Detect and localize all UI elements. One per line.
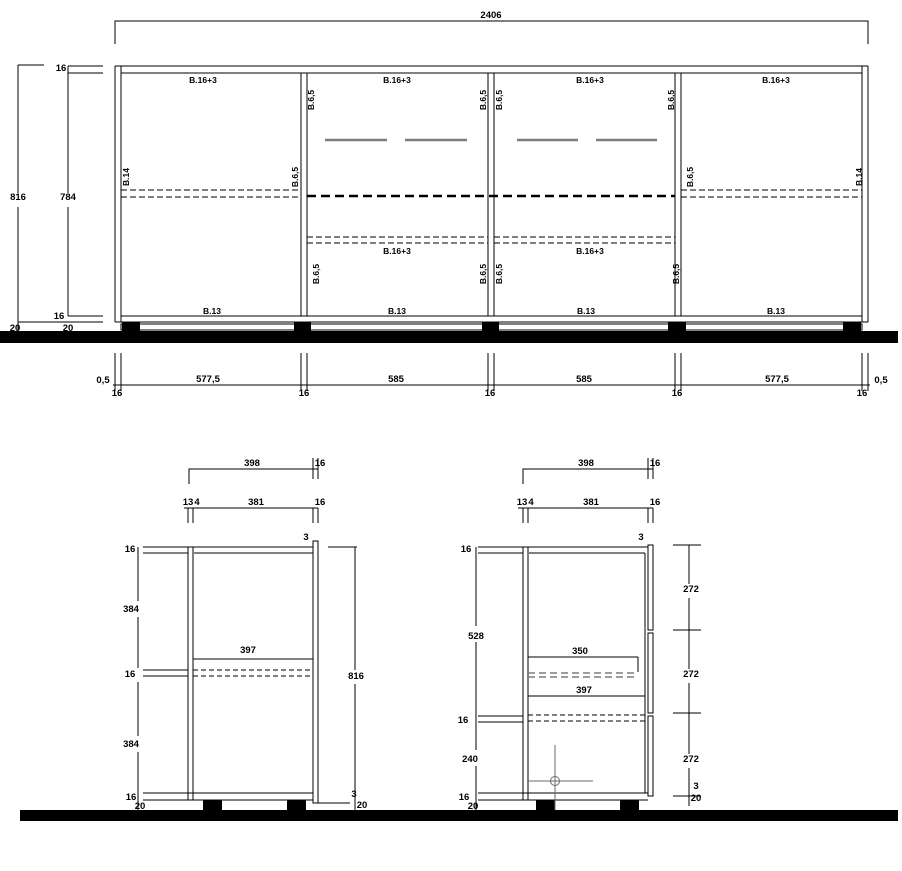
label-b65-low-1: B.6,5 bbox=[311, 264, 321, 285]
secA-dim-3-bottom: 3 bbox=[351, 789, 356, 800]
secA-hidden-lines bbox=[193, 670, 313, 676]
dim-bottom-panel: 16 bbox=[54, 311, 65, 322]
dim-bay3-width: 585 bbox=[576, 374, 593, 385]
secA-dim-top16: 16 bbox=[125, 544, 136, 555]
secA-dim-397: 397 bbox=[240, 645, 256, 656]
dim-16-5: 16 bbox=[857, 388, 868, 399]
secA-dim-384-lower: 384 bbox=[123, 739, 140, 750]
label-shelf-bay2: B.16+3 bbox=[383, 246, 411, 256]
label-bay3-top: B.16+3 bbox=[576, 75, 604, 85]
label-b65-mid-1: B.6,5 bbox=[290, 167, 300, 188]
label-b14-right: B.14 bbox=[854, 168, 864, 186]
cad-drawing-page: 2406 B.16+3 B.16+3 B.16+3 B.16+3 B.16+3 … bbox=[0, 0, 902, 871]
label-b65-top-2: B.6,5 bbox=[478, 90, 488, 111]
label-bottom-bay2: B.13 bbox=[388, 306, 406, 316]
label-bay2-top: B.16+3 bbox=[383, 75, 411, 85]
label-b65-mid-2: B.6,5 bbox=[685, 167, 695, 188]
secB-dim-272-1: 272 bbox=[683, 584, 699, 595]
secA-dim-384-upper: 384 bbox=[123, 604, 140, 615]
secA-dim-816: 816 bbox=[348, 671, 364, 682]
secA-dim-13: 13 bbox=[183, 497, 194, 508]
label-b65-top-4: B.6,5 bbox=[666, 90, 676, 111]
secB-dim-4: 4 bbox=[528, 497, 534, 508]
dim-16-1: 16 bbox=[112, 388, 123, 399]
dim-foot-b: 20 bbox=[63, 323, 74, 334]
label-b65-top-1: B.6,5 bbox=[306, 90, 316, 111]
label-bay1-top: B.16+3 bbox=[189, 75, 217, 85]
label-bottom-bay4: B.13 bbox=[767, 306, 785, 316]
dim-gap-right: 0,5 bbox=[874, 375, 888, 386]
secB-dim-foot20-right: 20 bbox=[691, 793, 702, 804]
secA-dim-foot20-right: 20 bbox=[357, 800, 368, 811]
secA-dim-398: 398 bbox=[244, 458, 260, 469]
secB-middle-front bbox=[648, 633, 653, 713]
secA-dim-16-door: 16 bbox=[315, 458, 326, 469]
secB-upper-door bbox=[648, 545, 653, 630]
dim-overall-width-label: 2406 bbox=[480, 10, 501, 21]
secB-dim-3-top: 3 bbox=[638, 532, 643, 543]
secB-dim-397: 397 bbox=[576, 685, 592, 696]
secB-dim-16-door2: 16 bbox=[650, 497, 661, 508]
secB-dim-272-3: 272 bbox=[683, 754, 699, 765]
secB-left-dim-lines bbox=[476, 547, 523, 810]
dim-foot-a: 20 bbox=[10, 323, 21, 334]
dim-16-2: 16 bbox=[299, 388, 310, 399]
secA-left-dim-lines bbox=[138, 547, 188, 810]
secB-feet bbox=[536, 800, 639, 810]
dim-16-3: 16 bbox=[485, 388, 496, 399]
secB-dim-350: 350 bbox=[572, 646, 588, 657]
label-b14-left: B.14 bbox=[121, 168, 131, 186]
dim-bay1-width: 577,5 bbox=[196, 374, 220, 385]
label-b65-low-2: B.6,5 bbox=[478, 264, 488, 285]
secA-dim-16-door2: 16 bbox=[315, 497, 326, 508]
secB-gray-hidden-lines bbox=[528, 673, 638, 677]
secB-depth-dim-line-2 bbox=[518, 508, 653, 523]
secB-lower-front bbox=[648, 716, 653, 796]
partition-lines bbox=[301, 73, 681, 316]
label-b65-low-3: B.6,5 bbox=[494, 264, 504, 285]
secB-dim-272-2: 272 bbox=[683, 669, 699, 680]
floor-line-sections bbox=[20, 810, 898, 821]
secB-dim-top16: 16 bbox=[461, 544, 472, 555]
floor-line-front bbox=[0, 331, 898, 343]
secA-dim-4: 4 bbox=[194, 497, 200, 508]
secA-depth-dim-line-2 bbox=[184, 508, 318, 523]
label-b65-low-4: B.6,5 bbox=[671, 264, 681, 285]
dim-gap-left: 0,5 bbox=[96, 375, 110, 386]
secB-hidden-lines bbox=[528, 715, 645, 721]
label-b65-top-3: B.6,5 bbox=[494, 90, 504, 111]
secB-dim-398: 398 bbox=[578, 458, 594, 469]
secA-body-lines bbox=[188, 547, 313, 800]
secB-dim-mid16: 16 bbox=[458, 715, 469, 726]
secA-dim-shelf16: 16 bbox=[125, 669, 136, 680]
dim-top-panel: 16 bbox=[56, 63, 67, 74]
secB-dim-240: 240 bbox=[462, 754, 478, 765]
label-bottom-bay1: B.13 bbox=[203, 306, 221, 316]
secB-dim-381: 381 bbox=[583, 497, 600, 508]
dim-16-4: 16 bbox=[672, 388, 683, 399]
secB-dim-16-door: 16 bbox=[650, 458, 661, 469]
secA-dim-381: 381 bbox=[248, 497, 265, 508]
secB-dim-3-bottom: 3 bbox=[693, 781, 698, 792]
furniture-elevation-drawing: 2406 B.16+3 B.16+3 B.16+3 B.16+3 B.16+3 … bbox=[0, 0, 902, 871]
secB-dim-13: 13 bbox=[517, 497, 528, 508]
label-bay4-top: B.16+3 bbox=[762, 75, 790, 85]
dim-bay4-width: 577,5 bbox=[765, 374, 789, 385]
secA-door-panel bbox=[313, 541, 318, 803]
secA-feet bbox=[203, 800, 306, 810]
secB-dim-528: 528 bbox=[468, 631, 484, 642]
label-bottom-bay3: B.13 bbox=[577, 306, 595, 316]
hidden-shelf-lines-center-bays bbox=[307, 237, 675, 243]
secA-dim-3-top: 3 bbox=[303, 532, 308, 543]
cabinet-outline bbox=[115, 66, 868, 322]
dim-bay2-width: 585 bbox=[388, 374, 405, 385]
dim-overall-width-line bbox=[115, 21, 868, 44]
dim-total-height: 816 bbox=[10, 192, 26, 203]
dim-inner-height: 784 bbox=[60, 192, 77, 203]
label-shelf-bay3: B.16+3 bbox=[576, 246, 604, 256]
front-bottom-dim-lines bbox=[113, 353, 870, 391]
